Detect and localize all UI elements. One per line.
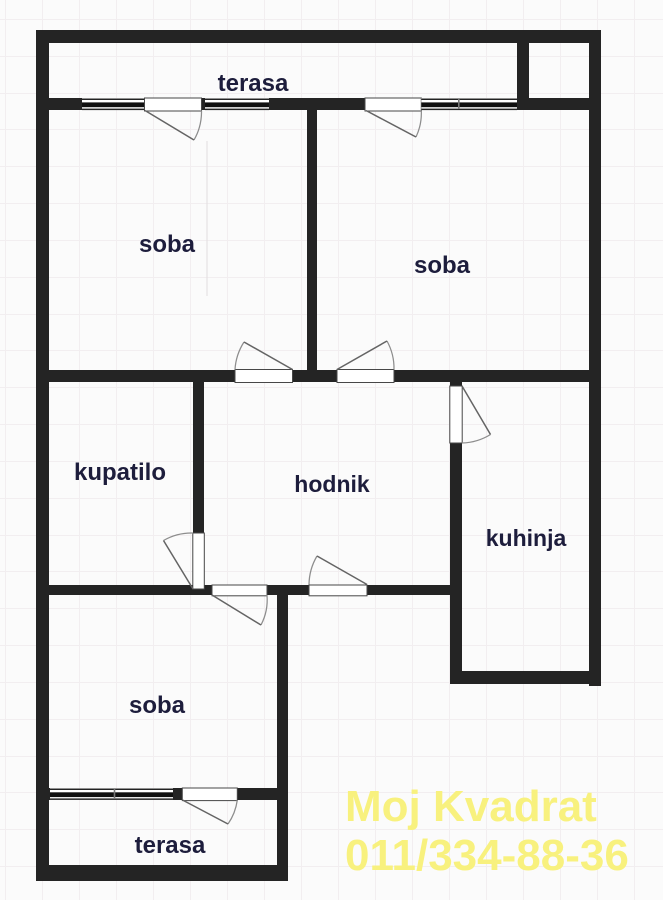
svg-text:011/334-88-36: 011/334-88-36 xyxy=(345,831,629,880)
svg-text:hodnik: hodnik xyxy=(294,471,370,497)
svg-text:soba: soba xyxy=(129,692,186,719)
svg-text:soba: soba xyxy=(414,252,471,279)
svg-text:kuhinja: kuhinja xyxy=(486,525,567,551)
svg-text:terasa: terasa xyxy=(135,832,206,859)
svg-text:Moj Kvadrat: Moj Kvadrat xyxy=(345,782,597,831)
svg-text:terasa: terasa xyxy=(218,70,289,97)
svg-text:kupatilo: kupatilo xyxy=(74,459,166,486)
svg-text:soba: soba xyxy=(139,231,196,258)
